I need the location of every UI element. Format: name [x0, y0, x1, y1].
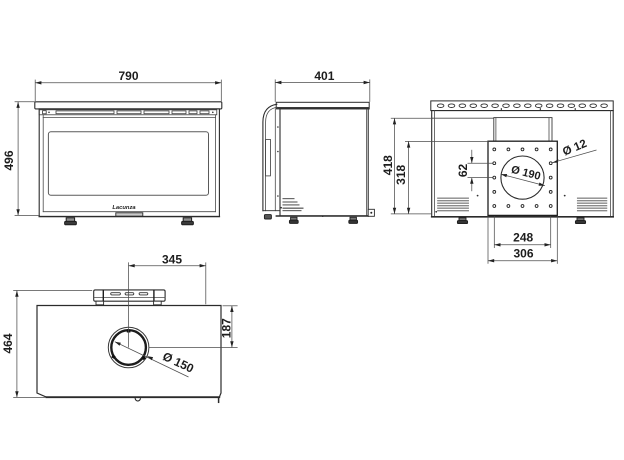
svg-text:318: 318: [394, 164, 408, 184]
svg-text:496: 496: [2, 150, 16, 170]
svg-text:418: 418: [381, 155, 395, 175]
svg-text:248: 248: [513, 231, 533, 245]
svg-text:187: 187: [220, 318, 234, 338]
svg-text:401: 401: [314, 69, 334, 83]
svg-text:464: 464: [1, 333, 15, 353]
svg-text:62: 62: [456, 164, 470, 178]
svg-text:790: 790: [118, 69, 138, 83]
svg-text:345: 345: [162, 252, 182, 266]
svg-text:Lacunza: Lacunza: [112, 205, 136, 211]
svg-text:306: 306: [513, 247, 533, 261]
